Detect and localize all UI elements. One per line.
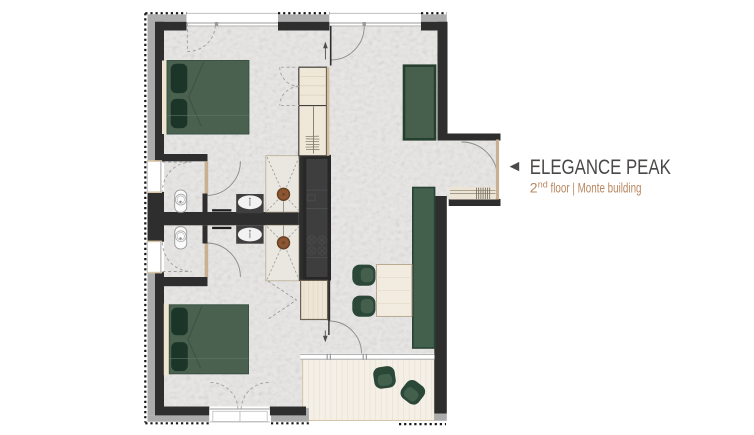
svg-text:floor | Monte building: floor | Monte building xyxy=(551,179,642,195)
svg-text:ELEGANCE PEAK: ELEGANCE PEAK xyxy=(530,156,671,179)
svg-text:2: 2 xyxy=(530,179,538,195)
svg-text:nd: nd xyxy=(538,179,548,189)
